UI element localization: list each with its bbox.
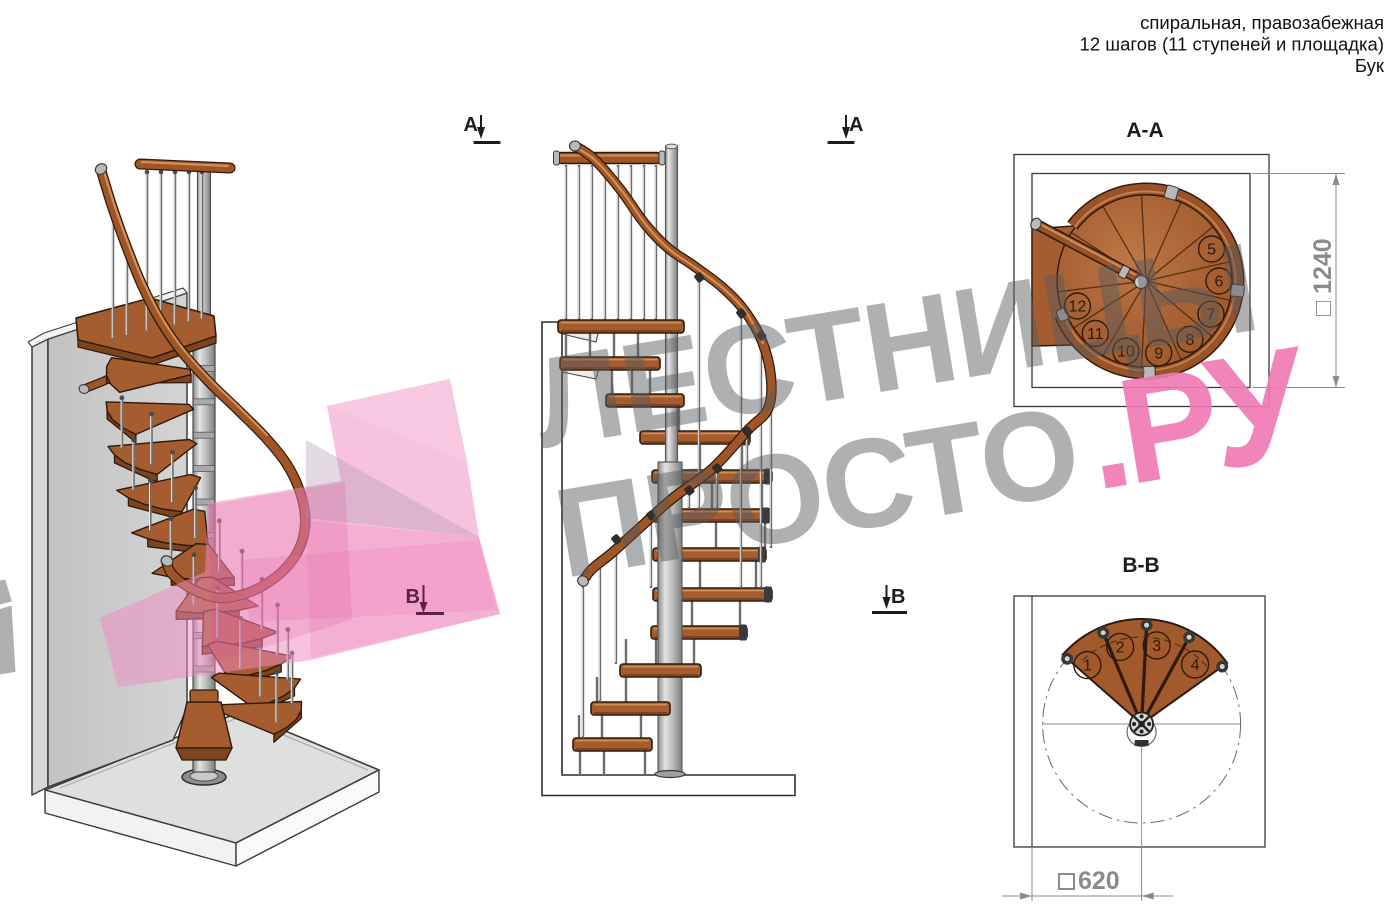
svg-text:A-A: A-A <box>1126 119 1163 142</box>
svg-text:A: A <box>464 114 478 136</box>
svg-text:1: 1 <box>1083 658 1092 675</box>
svg-text:620: 620 <box>1078 867 1120 895</box>
svg-text:Бук: Бук <box>1355 55 1385 76</box>
svg-text:спиральная, правозабежная: спиральная, правозабежная <box>1140 12 1384 33</box>
svg-text:B-B: B-B <box>1122 554 1159 577</box>
svg-text:B: B <box>406 586 420 608</box>
svg-text:4: 4 <box>1191 657 1200 674</box>
svg-text:12 шагов (11 ступеней и площад: 12 шагов (11 ступеней и площадка) <box>1080 34 1384 55</box>
svg-text:A: A <box>849 114 863 136</box>
svg-text:2: 2 <box>1116 639 1125 656</box>
svg-text:□ 1240: □ 1240 <box>1309 238 1337 316</box>
svg-text:3: 3 <box>1152 638 1161 655</box>
svg-text:B: B <box>891 586 905 608</box>
